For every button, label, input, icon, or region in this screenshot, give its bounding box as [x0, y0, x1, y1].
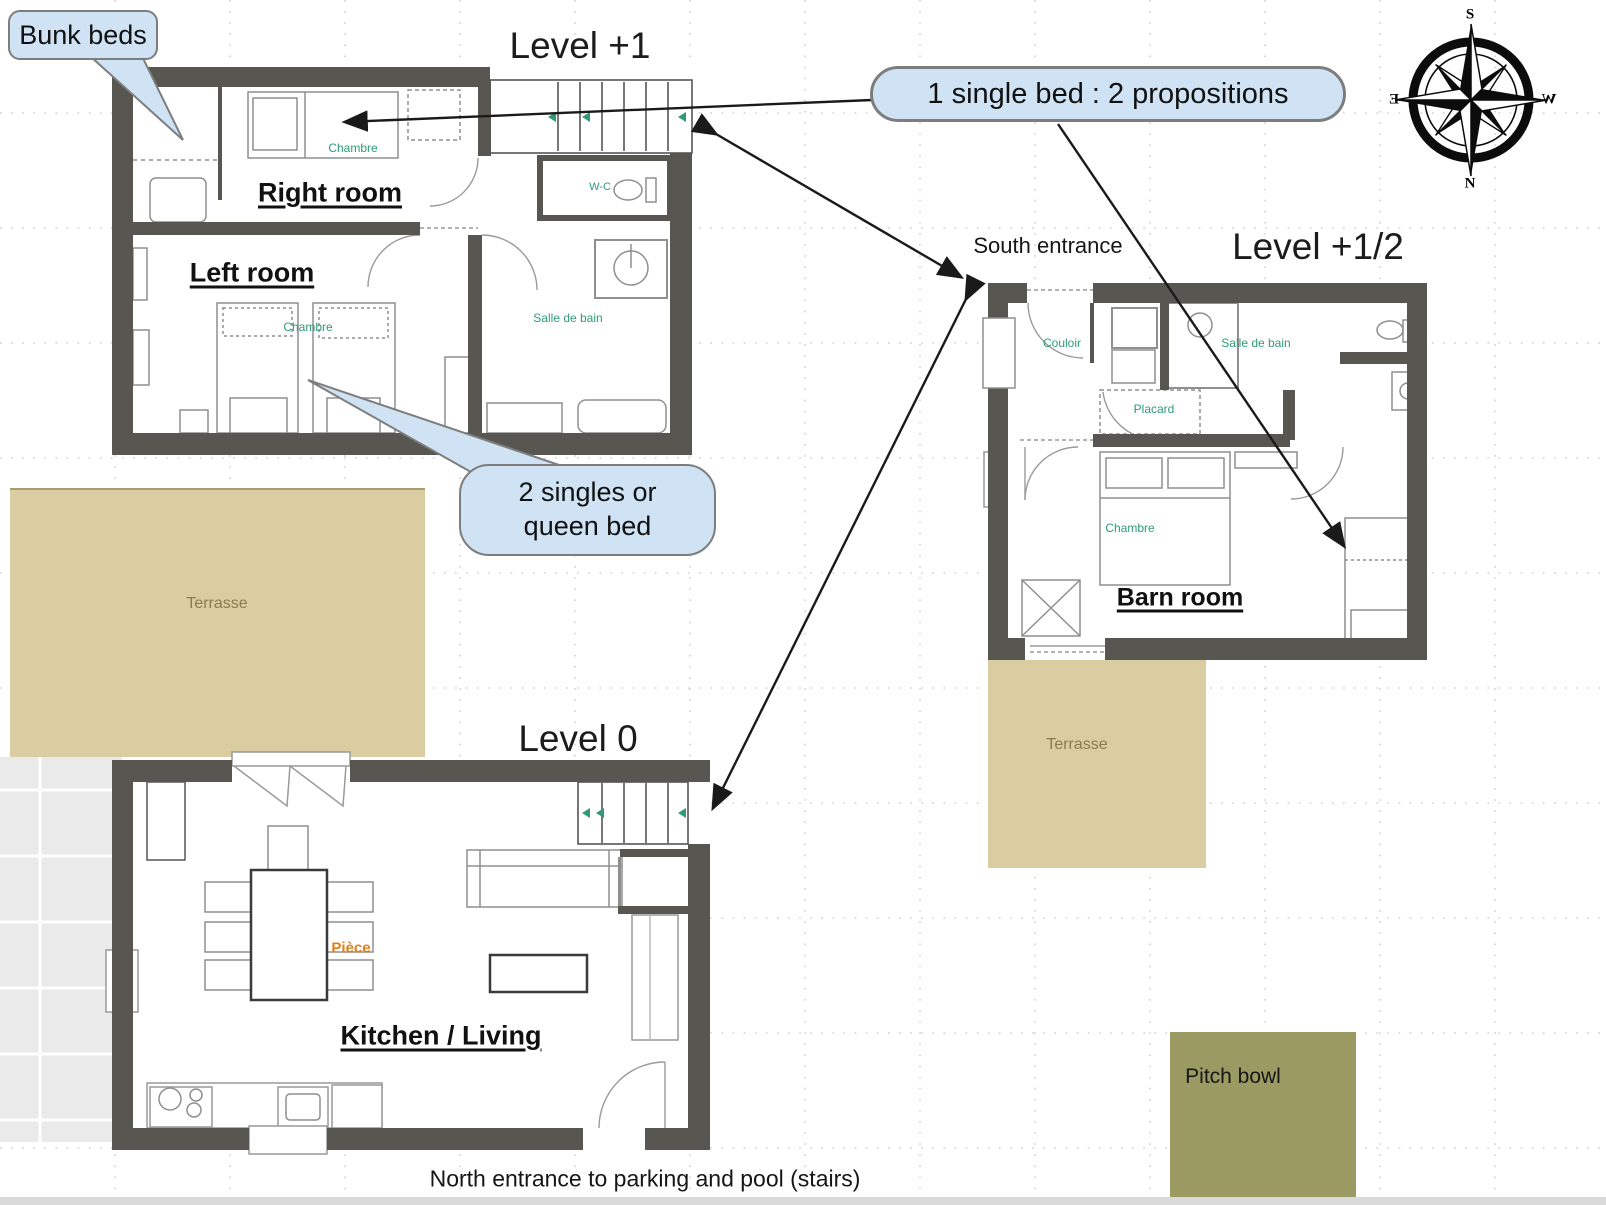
- terrace-barn: [988, 648, 1206, 868]
- queen-bed-callout: 2 singles or queen bed: [459, 464, 716, 556]
- plan-level-plus-1: [112, 65, 692, 455]
- plan-level-0: [106, 752, 710, 1154]
- compass-rose-icon: [1395, 24, 1547, 176]
- floorplan-canvas: Level +1 Level +1/2 Level 0 South entran…: [0, 0, 1606, 1205]
- pitch-bowl-area: [1170, 1032, 1356, 1197]
- single-bed-callout: 1 single bed : 2 propositions: [870, 66, 1346, 122]
- arrow-stairs-up: [716, 134, 961, 277]
- arrow-stairs-down: [713, 299, 966, 808]
- stairs-level-plus-1: [490, 80, 692, 153]
- single-bed-callout-text: 1 single bed : 2 propositions: [927, 78, 1288, 111]
- terrace-level0: [10, 488, 425, 757]
- tiled-patio: [0, 757, 122, 1142]
- bunk-beds-callout-text: Bunk beds: [19, 20, 147, 51]
- bottom-margin-strip: [0, 1197, 1606, 1205]
- queen-bed-callout-line2: queen bed: [524, 510, 652, 544]
- floorplan-drawing: [0, 0, 1606, 1205]
- bunk-beds-callout: Bunk beds: [8, 10, 158, 60]
- queen-bed-callout-line1: 2 singles or: [518, 476, 656, 510]
